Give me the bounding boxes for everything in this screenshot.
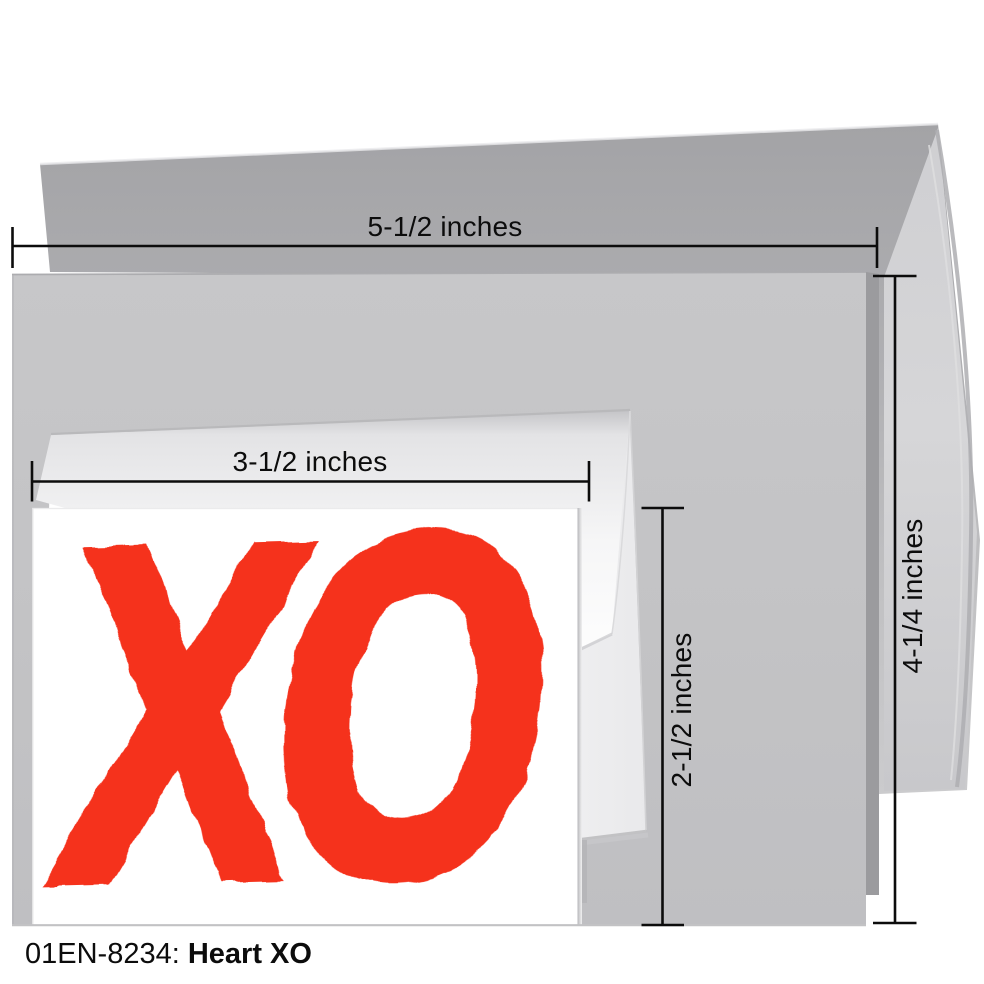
product-dimension-diagram: XO 5-1/2 in xyxy=(0,0,984,984)
card-artwork-text: XO xyxy=(26,442,556,984)
envelope-height-label: 4-1/4 inches xyxy=(898,416,928,776)
large-envelope-right-side-shadow xyxy=(866,272,879,895)
envelope-width-label: 5-1/2 inches xyxy=(245,212,645,242)
product-code: 01EN-8234: xyxy=(25,938,180,970)
card-width-label: 3-1/2 inches xyxy=(110,447,510,477)
product-caption: 01EN-8234: Heart XO xyxy=(25,939,312,970)
envelope-card-illustration: XO xyxy=(0,0,984,984)
greeting-card-right-edge xyxy=(578,508,583,925)
card-height-label: 2-1/2 inches xyxy=(667,530,697,890)
product-name: Heart XO xyxy=(188,938,312,970)
